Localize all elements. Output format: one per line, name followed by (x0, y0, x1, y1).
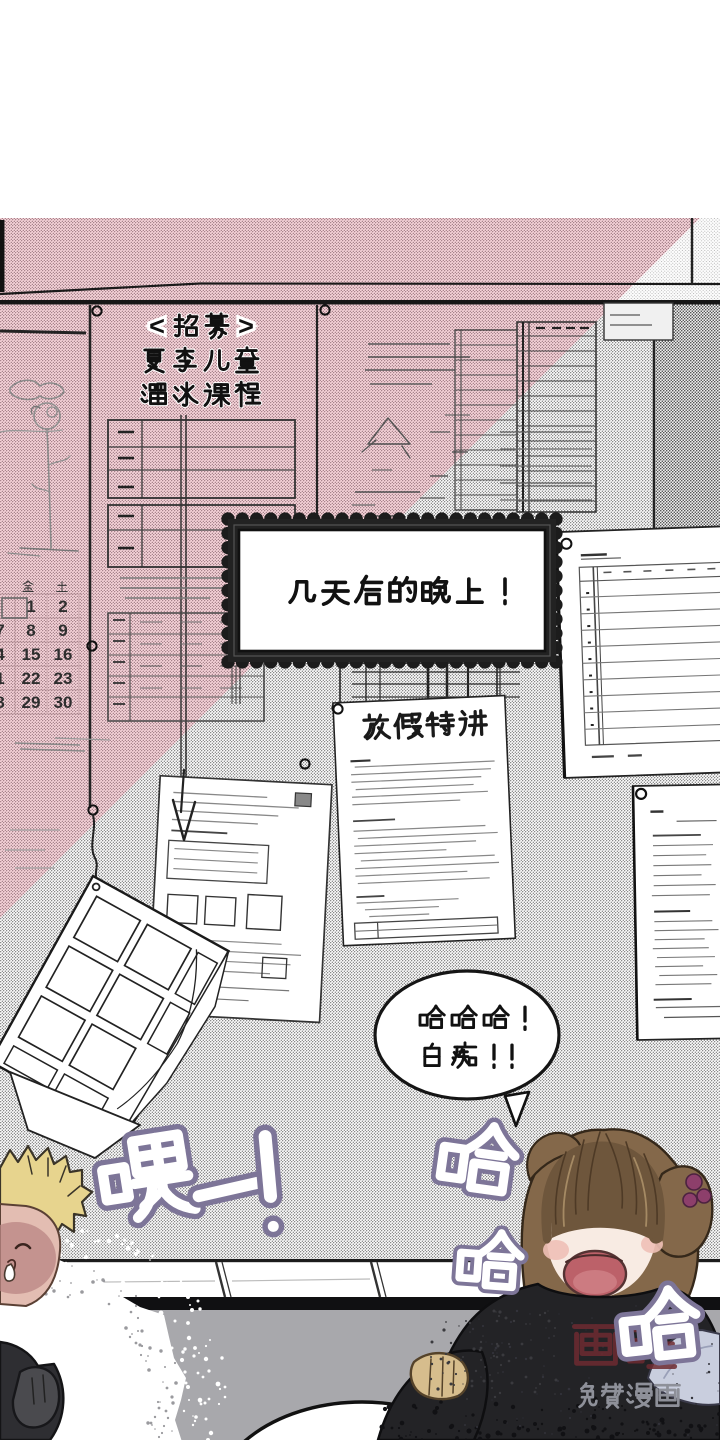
svg-text:8: 8 (0, 693, 5, 712)
svg-text:>: > (238, 311, 254, 341)
svg-text:22: 22 (22, 669, 41, 688)
svg-text:2: 2 (58, 597, 67, 616)
svg-text:29: 29 (22, 693, 41, 712)
svg-text:30: 30 (54, 693, 73, 712)
svg-text:8: 8 (26, 621, 35, 640)
svg-text:<: < (149, 311, 165, 341)
svg-text:1: 1 (0, 669, 5, 688)
svg-text:7: 7 (0, 621, 5, 640)
svg-text:9: 9 (58, 621, 67, 640)
svg-text:16: 16 (54, 645, 73, 664)
svg-text:4: 4 (0, 645, 5, 664)
svg-text:15: 15 (22, 645, 41, 664)
svg-text:23: 23 (54, 669, 73, 688)
